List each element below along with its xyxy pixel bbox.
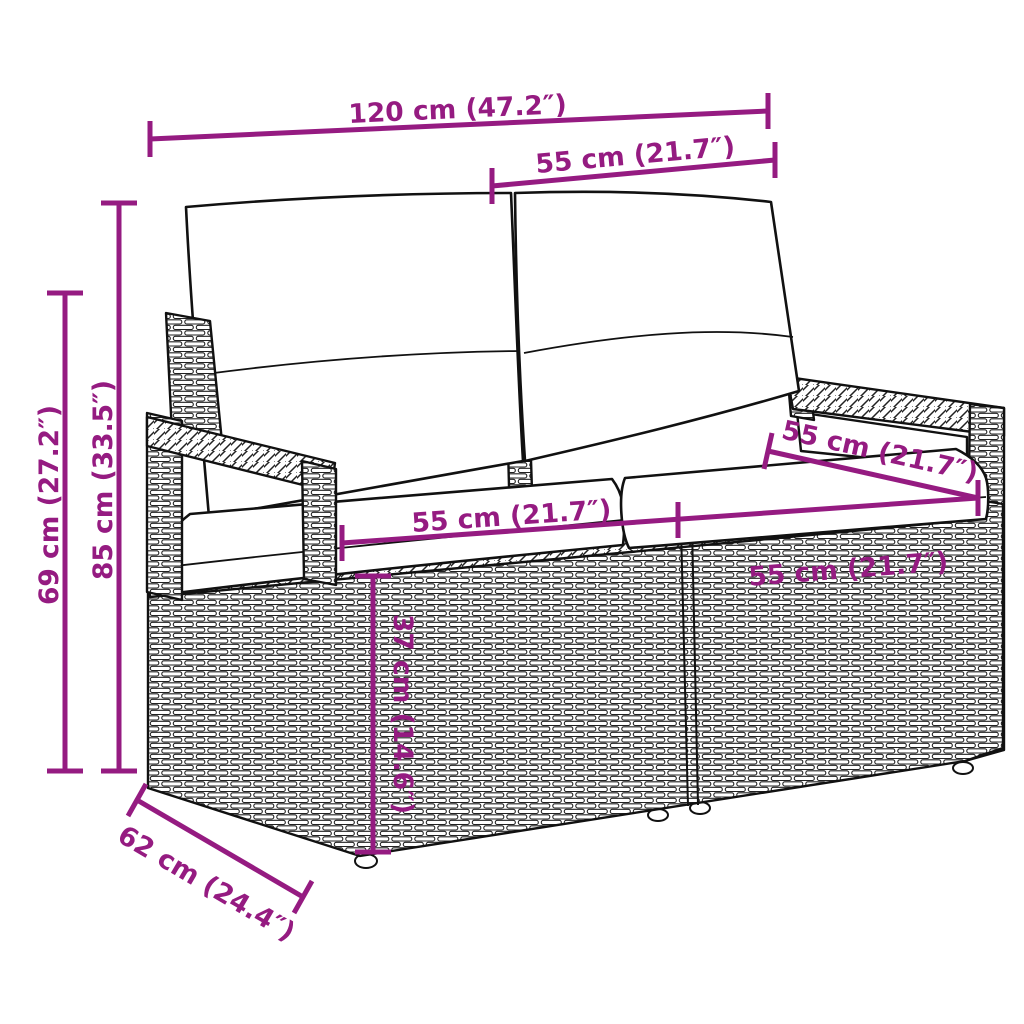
sofa-foot [953,762,973,774]
dim-tick [294,881,312,913]
sofa-dimension-svg: 120 cm (47.2″) 55 cm (21.7″) 85 cm (33.5… [0,0,1024,1024]
dim-tick [128,784,146,816]
dim-armrest-height: 69 cm (27.2″) [34,293,83,771]
dim-overall-height: 85 cm (33.5″) [88,203,137,771]
sofa-drawing [147,192,1004,868]
dim-label-overall-height: 85 cm (33.5″) [88,380,119,580]
dim-label-seat-height: 37 cm (14.6″) [387,614,418,814]
dim-label-armrest-height: 69 cm (27.2″) [34,405,65,605]
left-armrest-front-post [302,461,336,585]
back-cushion-right [515,192,799,461]
dimension-diagram: 120 cm (47.2″) 55 cm (21.7″) 85 cm (33.5… [0,0,1024,1024]
